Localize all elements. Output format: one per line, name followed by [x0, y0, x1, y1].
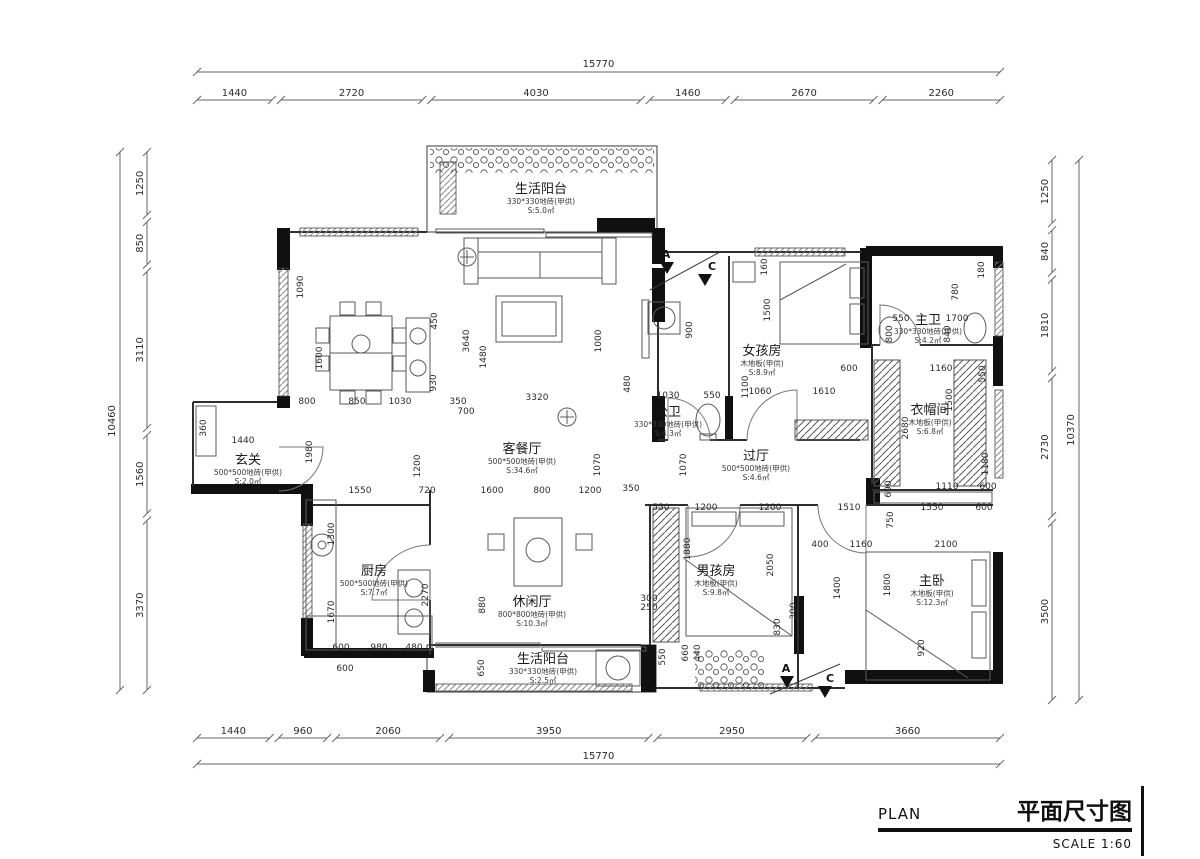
svg-text:生活阳台: 生活阳台: [515, 182, 567, 197]
dim-label: 1460: [675, 88, 700, 99]
dim-label: 3640: [462, 329, 472, 352]
section-letter: A: [662, 248, 671, 261]
dim-label: 2100: [935, 540, 958, 550]
dim-label: 690: [884, 480, 894, 497]
title-plan-en: PLAN: [878, 805, 921, 823]
dim-label: 440: [693, 644, 703, 661]
title-block: PLAN 平面尺寸图 SCALE 1:60: [878, 792, 1132, 851]
dim-label: 900: [685, 321, 695, 338]
dim-label: 1480: [479, 345, 489, 368]
dim-label: 1400: [833, 576, 843, 599]
dim-label: 1030: [657, 391, 680, 401]
dim-label: 350: [449, 397, 466, 407]
dim-label: 1440: [232, 436, 255, 446]
dim-label: 480: [623, 375, 633, 392]
dim-label: 1070: [593, 453, 603, 476]
svg-text:500*500地砖(甲供): 500*500地砖(甲供): [722, 463, 790, 473]
svg-text:客餐厅: 客餐厅: [502, 441, 541, 457]
dim-label: 10460: [107, 405, 118, 437]
svg-text:男孩房: 男孩房: [696, 563, 735, 579]
dim-label: 1600: [315, 346, 325, 369]
svg-text:过厅: 过厅: [743, 449, 769, 464]
svg-text:主卫: 主卫: [915, 313, 941, 328]
bed-master: [866, 552, 990, 680]
bed-girls: [780, 262, 868, 344]
dim-label: 550: [703, 391, 720, 401]
dim-label: 3370: [135, 593, 146, 618]
section-letter: C: [826, 672, 834, 685]
svg-text:500*500地砖(甲供): 500*500地砖(甲供): [488, 456, 556, 466]
dim-label: 2270: [421, 583, 431, 606]
dim-label: 1200: [413, 454, 423, 477]
svg-text:女孩房: 女孩房: [742, 343, 781, 359]
room-label-entry: 玄关 500*500地砖(甲供) S:2.0㎡: [214, 453, 282, 486]
room-label-hallway: 过厅 500*500地砖(甲供) S:4.6㎡: [722, 449, 790, 482]
dim-label: 920: [917, 639, 927, 656]
drawing-sheet: A C A C 生活阳台 330*330地砖(甲供) S:5.0㎡ 玄关 500…: [0, 0, 1200, 859]
dim-label: 960: [293, 726, 312, 737]
dim-label: 1250: [1040, 179, 1051, 204]
dim-label: 1110: [936, 482, 959, 492]
dim-label: 1200: [759, 503, 782, 513]
dim-label: 1980: [305, 440, 315, 463]
dim-label: 800: [885, 325, 895, 342]
title-scale: SCALE 1:60: [878, 837, 1132, 851]
dim-label: 880: [478, 596, 488, 613]
svg-text:S:34.6㎡: S:34.6㎡: [506, 466, 538, 475]
washing-machine: [596, 650, 640, 686]
svg-text:500*500地砖(甲供): 500*500地砖(甲供): [340, 578, 408, 588]
dim-label: 1810: [1040, 313, 1051, 338]
svg-text:S:6.8㎡: S:6.8㎡: [917, 427, 944, 436]
dim-label: 1550: [349, 486, 372, 496]
svg-text:衣帽间: 衣帽间: [910, 402, 949, 418]
dim-label: 350: [622, 484, 639, 494]
dim-label: 750: [886, 511, 896, 528]
svg-text:木地板(甲供): 木地板(甲供): [740, 358, 783, 368]
dim-label: 2680: [901, 416, 911, 439]
dim-label: 2670: [791, 88, 816, 99]
dim-label: 1200: [579, 486, 602, 496]
dim-label: 600: [975, 503, 992, 513]
svg-text:木地板(甲供): 木地板(甲供): [910, 588, 953, 598]
dim-label: 1000: [594, 329, 604, 352]
dim-label: 1800: [883, 573, 893, 596]
svg-text:S:2.5㎡: S:2.5㎡: [530, 676, 557, 685]
dim-label: 840: [943, 325, 953, 342]
dim-label: 850: [135, 234, 146, 253]
room-label-leisure: 休闲厅 800*800地砖(甲供) S:10.3㎡: [498, 595, 566, 628]
svg-text:330*330地砖(甲供): 330*330地砖(甲供): [507, 196, 575, 206]
dim-label: 1090: [296, 275, 306, 298]
dim-label: 850: [348, 397, 365, 407]
dim-label: 3110: [135, 337, 146, 362]
svg-text:S:9.8㎡: S:9.8㎡: [703, 588, 730, 597]
dim-label: 400: [811, 540, 828, 550]
svg-text:厨房: 厨房: [361, 563, 387, 579]
dim-label: 600: [840, 364, 857, 374]
dim-label: 480: [405, 643, 422, 653]
dim-label: 550: [892, 314, 909, 324]
dim-label: 1180: [981, 452, 991, 475]
title-rule: [878, 828, 1132, 832]
dim-label: 1880: [683, 537, 693, 560]
svg-text:330*330地砖(甲供): 330*330地砖(甲供): [634, 419, 702, 429]
dim-label: 1160: [850, 540, 873, 550]
coffee-table: [496, 296, 562, 342]
section-letter: C: [708, 260, 716, 273]
svg-text:S:7.7㎡: S:7.7㎡: [361, 588, 388, 597]
dim-label: 840: [1040, 242, 1051, 261]
dim-label: 180: [977, 261, 987, 278]
svg-text:S:12.3㎡: S:12.3㎡: [916, 598, 948, 607]
section-letter: A: [782, 662, 791, 675]
wardrobe-girls: [795, 420, 868, 440]
dim-label: 2050: [766, 553, 776, 576]
dim-label: 1560: [135, 462, 146, 487]
dim-label: 650: [477, 659, 487, 676]
dim-label: 10370: [1066, 414, 1077, 446]
dim-label: 2260: [929, 88, 954, 99]
tea-table: [514, 518, 562, 586]
dim-label: 1100: [741, 375, 751, 398]
dim-label: 2060: [375, 726, 400, 737]
wardrobe-boys: [653, 508, 679, 642]
dim-label: 830: [773, 618, 783, 635]
dim-label: 15770: [583, 59, 615, 70]
dim-label: 1070: [679, 453, 689, 476]
svg-text:S:10.3㎡: S:10.3㎡: [516, 619, 548, 628]
dim-label: 600: [332, 643, 349, 653]
dim-label: 3320: [526, 393, 549, 403]
plants: [695, 650, 765, 688]
dim-label: 800: [533, 486, 550, 496]
dim-label: 4030: [523, 88, 548, 99]
dim-label: 980: [370, 643, 387, 653]
svg-text:主卧: 主卧: [919, 574, 945, 589]
title-plan-cn: 平面尺寸图: [1017, 792, 1132, 826]
dim-label: 1300: [327, 522, 337, 545]
dim-label: 1200: [695, 503, 718, 513]
wardrobe-closet-1: [874, 360, 900, 486]
svg-text:玄关: 玄关: [235, 453, 261, 468]
sofa-back: [478, 238, 602, 252]
cabinet: [406, 318, 430, 392]
title-divider: [1141, 786, 1144, 856]
dim-label: 3660: [895, 726, 920, 737]
dim-label: 930: [429, 374, 439, 391]
sliding-doors: [436, 229, 652, 651]
dim-label: 450: [430, 312, 440, 329]
svg-text:S:2.0㎡: S:2.0㎡: [235, 477, 262, 486]
dim-label: 600: [336, 664, 353, 674]
dim-label: 700: [457, 407, 474, 417]
dim-label: 1440: [222, 88, 247, 99]
dim-label: 550: [652, 503, 669, 513]
svg-text:S:4.6㎡: S:4.6㎡: [743, 473, 770, 482]
dim-label: 250: [640, 603, 657, 613]
room-label-public-bath: 公卫 330*330地砖(甲供) S:4.3㎡: [634, 405, 702, 438]
dim-label: 1700: [946, 314, 969, 324]
dim-label: 1160: [930, 364, 953, 374]
svg-text:500*500地砖(甲供): 500*500地砖(甲供): [214, 467, 282, 477]
dim-label: 1600: [481, 486, 504, 496]
dim-label: 1060: [749, 387, 772, 397]
dim-label: 800: [298, 397, 315, 407]
nightstand: [733, 262, 755, 282]
planter-band: [430, 148, 654, 173]
dim-label: 2720: [339, 88, 364, 99]
svg-text:公卫: 公卫: [655, 405, 681, 420]
room-label-girls-room: 女孩房 木地板(甲供) S:8.9㎡: [740, 343, 783, 377]
svg-text:S:4.3㎡: S:4.3㎡: [655, 429, 682, 438]
dim-label: 600: [979, 482, 996, 492]
dim-label: 2730: [1040, 434, 1051, 459]
svg-text:休闲厅: 休闲厅: [512, 595, 551, 610]
dim-label: 160: [760, 258, 770, 275]
svg-text:330*330地砖(甲供): 330*330地砖(甲供): [509, 666, 577, 676]
dim-label: 1500: [945, 388, 955, 411]
dim-label: 1510: [838, 503, 861, 513]
room-label-master-bedroom: 主卧 木地板(甲供) S:12.3㎡: [910, 574, 953, 607]
dim-label: 1670: [327, 600, 337, 623]
svg-text:S:8.9㎡: S:8.9㎡: [749, 368, 776, 377]
balcony-ladder: [440, 162, 456, 214]
dim-label: 2950: [719, 726, 744, 737]
dim-label: 3500: [1040, 599, 1051, 624]
svg-text:S:5.0㎡: S:5.0㎡: [528, 206, 555, 215]
svg-text:S:4.2㎡: S:4.2㎡: [915, 336, 942, 345]
room-label-balcony-top: 生活阳台 330*330地砖(甲供) S:5.0㎡: [507, 182, 575, 215]
dim-label: 1610: [813, 387, 836, 397]
svg-text:800*800地砖(甲供): 800*800地砖(甲供): [498, 609, 566, 619]
dim-label: 720: [418, 486, 435, 496]
dim-label: 15770: [583, 751, 615, 762]
dim-label: 550: [658, 648, 668, 665]
dim-label: 1440: [221, 726, 246, 737]
room-label-living: 客餐厅 500*500地砖(甲供) S:34.6㎡: [488, 441, 556, 475]
dim-label: 660: [681, 644, 691, 661]
dim-label: 1030: [389, 397, 412, 407]
dim-label: 1500: [763, 298, 773, 321]
svg-text:木地板(甲供): 木地板(甲供): [694, 578, 737, 588]
dim-label: 780: [951, 283, 961, 300]
dim-label: 550: [978, 365, 988, 382]
room-label-balcony-bottom: 生活阳台 330*330地砖(甲供) S:2.5㎡: [509, 652, 577, 685]
dim-label: 1550: [921, 503, 944, 513]
floor-plan-canvas: A C A C 生活阳台 330*330地砖(甲供) S:5.0㎡ 玄关 500…: [0, 0, 1200, 859]
svg-text:木地板(甲供): 木地板(甲供): [908, 417, 951, 427]
dim-label: 360: [199, 419, 209, 436]
svg-text:生活阳台: 生活阳台: [517, 652, 569, 667]
dim-label: 3950: [536, 726, 561, 737]
dim-label: 1250: [135, 171, 146, 196]
dim-label: 300: [789, 602, 799, 619]
